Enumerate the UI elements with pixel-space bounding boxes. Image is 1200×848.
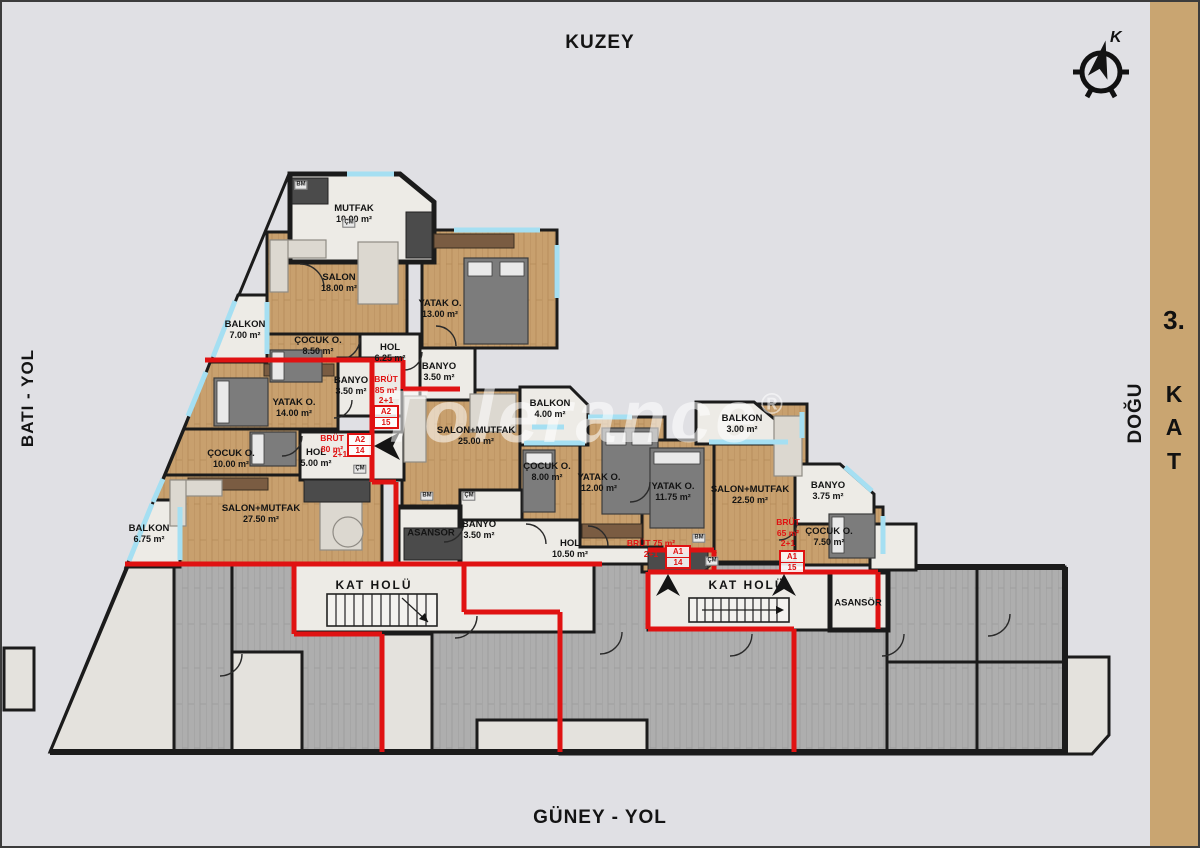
room-label: SALON18.00 m²	[321, 272, 357, 294]
room-name: KAT HOLÜ	[708, 578, 785, 592]
label-west-road: BATI - YOL	[18, 338, 38, 458]
room-name: YATAK O.	[418, 298, 461, 309]
unit-code: 15	[781, 562, 803, 573]
room-label: ÇOCUK O.7.50 m²	[805, 526, 853, 548]
appliance-tag: ÇM	[342, 219, 355, 228]
room-area: 4.00 m²	[530, 409, 571, 420]
unit-code-box: A214	[347, 433, 373, 457]
room-label: HOL10.50 m²	[552, 538, 588, 560]
room-area: 3.00 m²	[722, 424, 763, 435]
appliance-tag: BM	[420, 492, 433, 501]
room-label: KAT HOLÜ	[335, 578, 412, 592]
room-name: YATAK O.	[272, 397, 315, 408]
appliance-tag: BM	[692, 534, 705, 543]
unit-code-box: A215	[373, 405, 399, 429]
room-area: 11.75 m²	[651, 492, 694, 503]
room-label: BANYO3.50 m²	[334, 375, 368, 397]
room-name: BALKON	[530, 398, 571, 409]
room-label: SALON+MUTFAK27.50 m²	[222, 503, 300, 525]
room-name: YATAK O.	[577, 472, 620, 483]
room-label: ÇOCUK O.8.50 m²	[294, 335, 342, 357]
room-name: HOL	[380, 342, 400, 353]
room-name: BALKON	[722, 413, 763, 424]
room-name: SALON+MUTFAK	[437, 425, 515, 436]
room-name: KAT HOLÜ	[335, 578, 412, 592]
room-label: BALKON4.00 m²	[530, 398, 571, 420]
unit-gross-area-label: BRÜT85 m²2+1	[374, 374, 398, 406]
unit-code-box: A115	[779, 550, 805, 574]
room-area: 12.00 m²	[577, 483, 620, 494]
room-label: ÇOCUK O.8.00 m²	[523, 461, 571, 483]
room-label: YATAK O.13.00 m²	[418, 298, 461, 320]
room-area: 8.00 m²	[523, 472, 571, 483]
room-area: 25.00 m²	[437, 436, 515, 447]
unit-label-line: 65 m²	[776, 528, 800, 539]
unit-code: A1	[667, 547, 689, 557]
room-name: SALON	[322, 272, 355, 283]
unit-code: A2	[349, 435, 371, 445]
room-label: BALKON7.00 m²	[225, 319, 266, 341]
appliance-tag: ÇM	[353, 465, 366, 474]
room-area: 5.00 m²	[300, 458, 331, 469]
room-name: ASANSÖR	[834, 597, 882, 608]
unit-label-line: BRÜT	[320, 433, 344, 444]
room-label: BANYO3.50 m²	[422, 361, 456, 383]
room-label: BANYO3.75 m²	[811, 480, 845, 502]
unit-code: A2	[375, 407, 397, 417]
room-name: BANYO	[334, 375, 368, 386]
appliance-tag: BM	[294, 181, 307, 190]
room-name: YATAK O.	[651, 481, 694, 492]
label-north: KUZEY	[2, 32, 1198, 54]
room-name: BALKON	[225, 319, 266, 330]
unit-label-line: BRÜT	[374, 374, 398, 385]
room-label: ASANSÖR	[407, 527, 455, 538]
room-area: 3.50 m²	[334, 386, 368, 397]
room-label: YATAK O.14.00 m²	[272, 397, 315, 419]
unit-label-line: 85 m²	[374, 385, 398, 396]
room-label: SALON+MUTFAK22.50 m²	[711, 484, 789, 506]
room-area: 13.00 m²	[418, 309, 461, 320]
room-area: 10.50 m²	[552, 549, 588, 560]
room-area: 3.50 m²	[422, 372, 456, 383]
room-area: 8.50 m²	[294, 346, 342, 357]
room-name: ÇOCUK O.	[294, 335, 342, 346]
room-area: 3.75 m²	[811, 491, 845, 502]
unit-code: A1	[781, 552, 803, 562]
room-labels-layer: MUTFAK10.00 m²SALON18.00 m²YATAK O.13.00…	[2, 2, 1198, 846]
room-name: SALON+MUTFAK	[222, 503, 300, 514]
floor-word: K A T	[1150, 378, 1198, 478]
room-label: BALKON3.00 m²	[722, 413, 763, 435]
room-area: 27.50 m²	[222, 514, 300, 525]
unit-code: 14	[349, 445, 371, 456]
unit-code: 15	[375, 417, 397, 428]
room-area: 3.50 m²	[462, 530, 496, 541]
room-name: MUTFAK	[334, 203, 374, 214]
floor-band: 3. K A T	[1150, 2, 1198, 846]
room-name: HOL	[560, 538, 580, 549]
room-name: BANYO	[462, 519, 496, 530]
room-label: BANYO3.50 m²	[462, 519, 496, 541]
room-area: 7.50 m²	[805, 537, 853, 548]
unit-type-tag: 2+1	[333, 449, 347, 459]
unit-code: 14	[667, 557, 689, 568]
room-label: ASANSÖR	[834, 597, 882, 608]
room-name: ÇOCUK O.	[207, 448, 255, 459]
room-label: YATAK O.12.00 m²	[577, 472, 620, 494]
label-east: DOĞU	[1125, 353, 1147, 473]
unit-label-line: BRÜT	[776, 517, 800, 528]
room-label: SALON+MUTFAK25.00 m²	[437, 425, 515, 447]
room-area: 10.00 m²	[207, 459, 255, 470]
room-area: 14.00 m²	[272, 408, 315, 419]
room-name: ÇOCUK O.	[523, 461, 571, 472]
room-label: HOL6.25 m²	[374, 342, 405, 364]
room-label: YATAK O.11.75 m²	[651, 481, 694, 503]
room-name: BALKON	[129, 523, 170, 534]
room-area: 6.25 m²	[374, 353, 405, 364]
unit-label-line: 2+1	[776, 538, 800, 549]
floor-number: 3.	[1150, 305, 1198, 336]
room-area: 22.50 m²	[711, 495, 789, 506]
room-name: BANYO	[811, 480, 845, 491]
appliance-tag: ÇM	[462, 492, 475, 501]
room-name: BANYO	[422, 361, 456, 372]
floor-letter: A	[1150, 411, 1198, 444]
room-name: SALON+MUTFAK	[711, 484, 789, 495]
room-name: ÇOCUK O.	[805, 526, 853, 537]
room-label: ÇOCUK O.10.00 m²	[207, 448, 255, 470]
unit-code-box: A114	[665, 545, 691, 569]
room-area: 7.00 m²	[225, 330, 266, 341]
floor-letter: T	[1150, 445, 1198, 478]
label-south-road: GÜNEY - YOL	[2, 807, 1198, 829]
appliance-tag: ÇM	[705, 557, 718, 566]
room-name: ASANSÖR	[407, 527, 455, 538]
unit-gross-area-label: BRÜT65 m²2+1	[776, 517, 800, 549]
floorplan-page: K Tolerance® MUTFAK10.00 m²SALON18.00 m²…	[0, 0, 1200, 848]
floor-letter: K	[1150, 378, 1198, 411]
room-label: KAT HOLÜ	[708, 578, 785, 592]
room-label: BALKON6.75 m²	[129, 523, 170, 545]
room-area: 18.00 m²	[321, 283, 357, 294]
room-area: 6.75 m²	[129, 534, 170, 545]
